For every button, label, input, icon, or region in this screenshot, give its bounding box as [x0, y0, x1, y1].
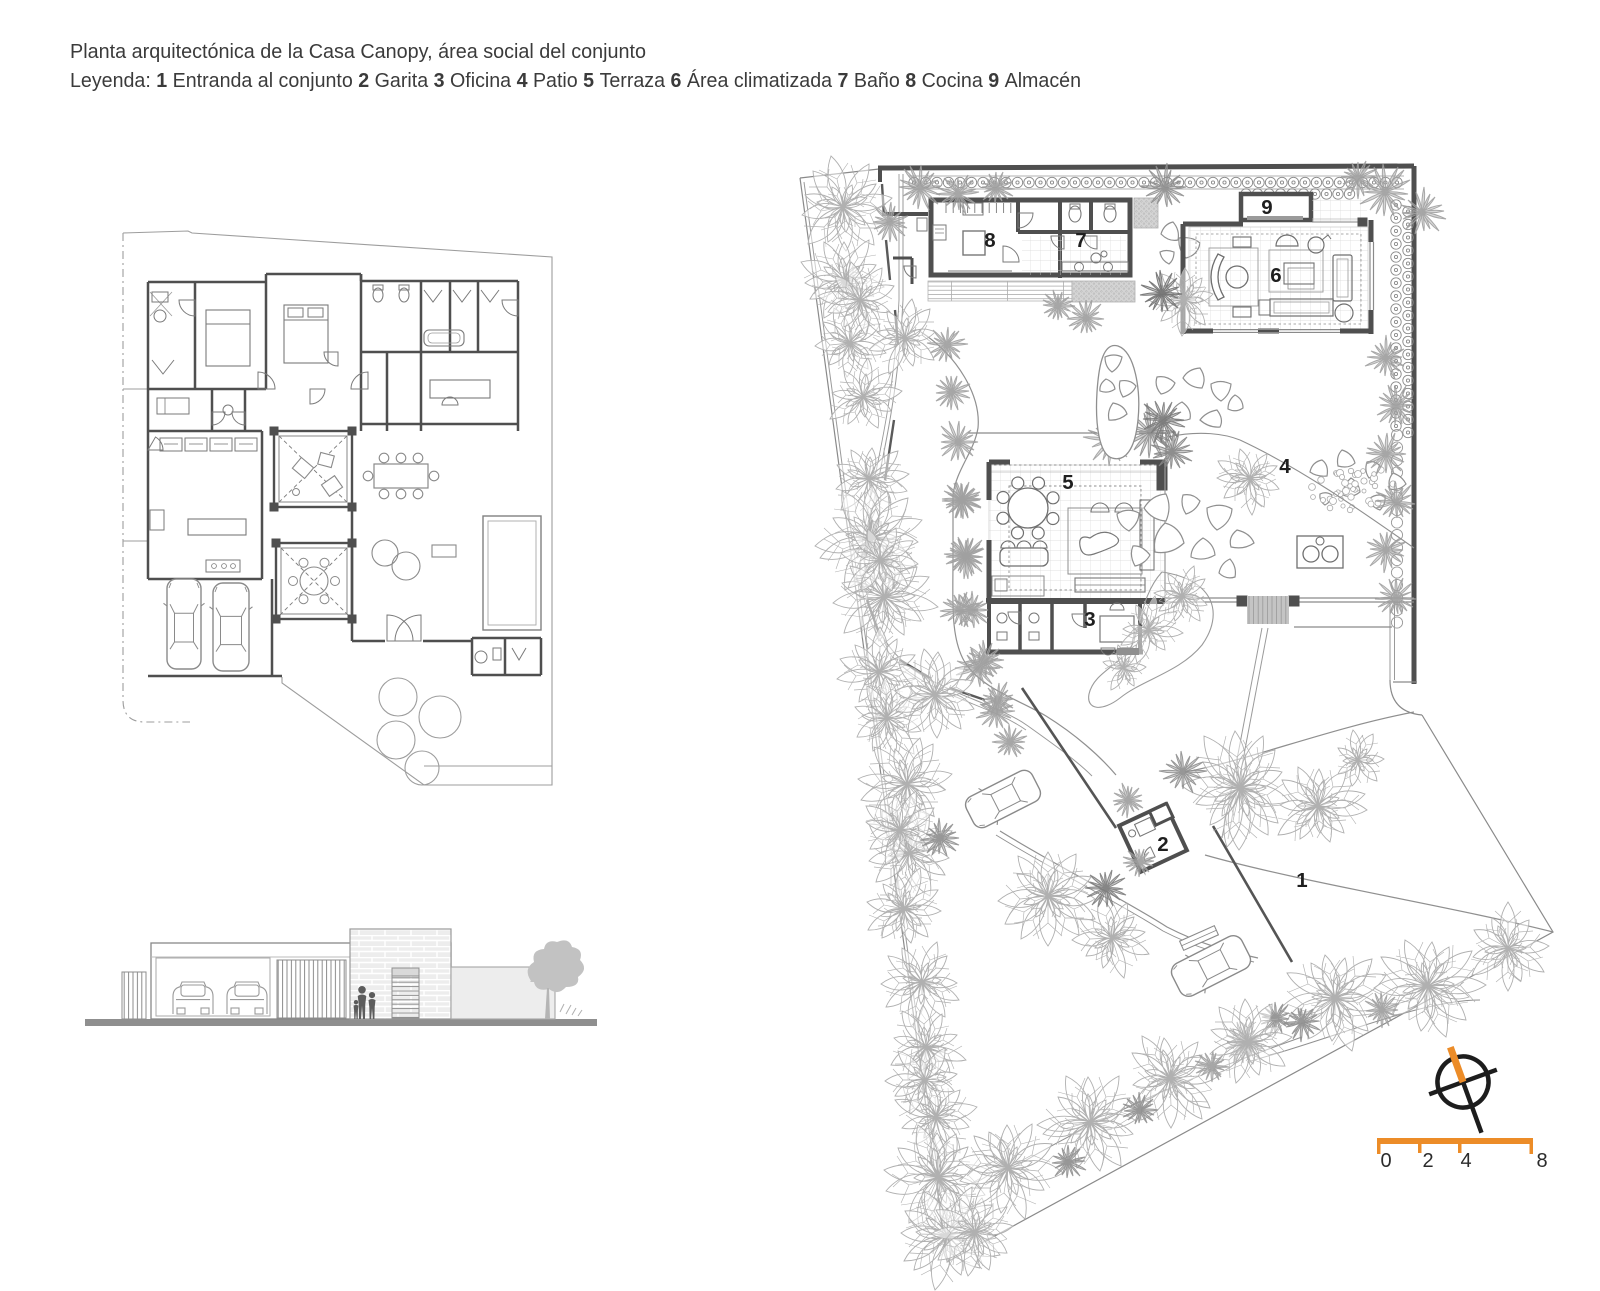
svg-text:Planta arquitectónica de la Ca: Planta arquitectónica de la Casa Canopy,… [70, 41, 646, 63]
svg-text:1: 1 [1296, 869, 1307, 892]
svg-text:9: 9 [1261, 196, 1272, 219]
svg-text:2: 2 [1422, 1150, 1433, 1172]
svg-text:Leyenda: 1 Entranda al conjunt: Leyenda: 1 Entranda al conjunto 2 Garita… [70, 69, 1081, 92]
svg-text:3: 3 [1084, 608, 1095, 631]
svg-text:5: 5 [1062, 471, 1073, 494]
svg-text:4: 4 [1279, 455, 1291, 478]
svg-text:6: 6 [1270, 264, 1281, 287]
svg-text:8: 8 [1536, 1150, 1547, 1172]
svg-text:7: 7 [1075, 229, 1086, 252]
svg-text:2: 2 [1157, 833, 1168, 856]
svg-text:8: 8 [984, 229, 995, 252]
svg-text:4: 4 [1460, 1150, 1471, 1172]
svg-text:0: 0 [1380, 1150, 1391, 1172]
